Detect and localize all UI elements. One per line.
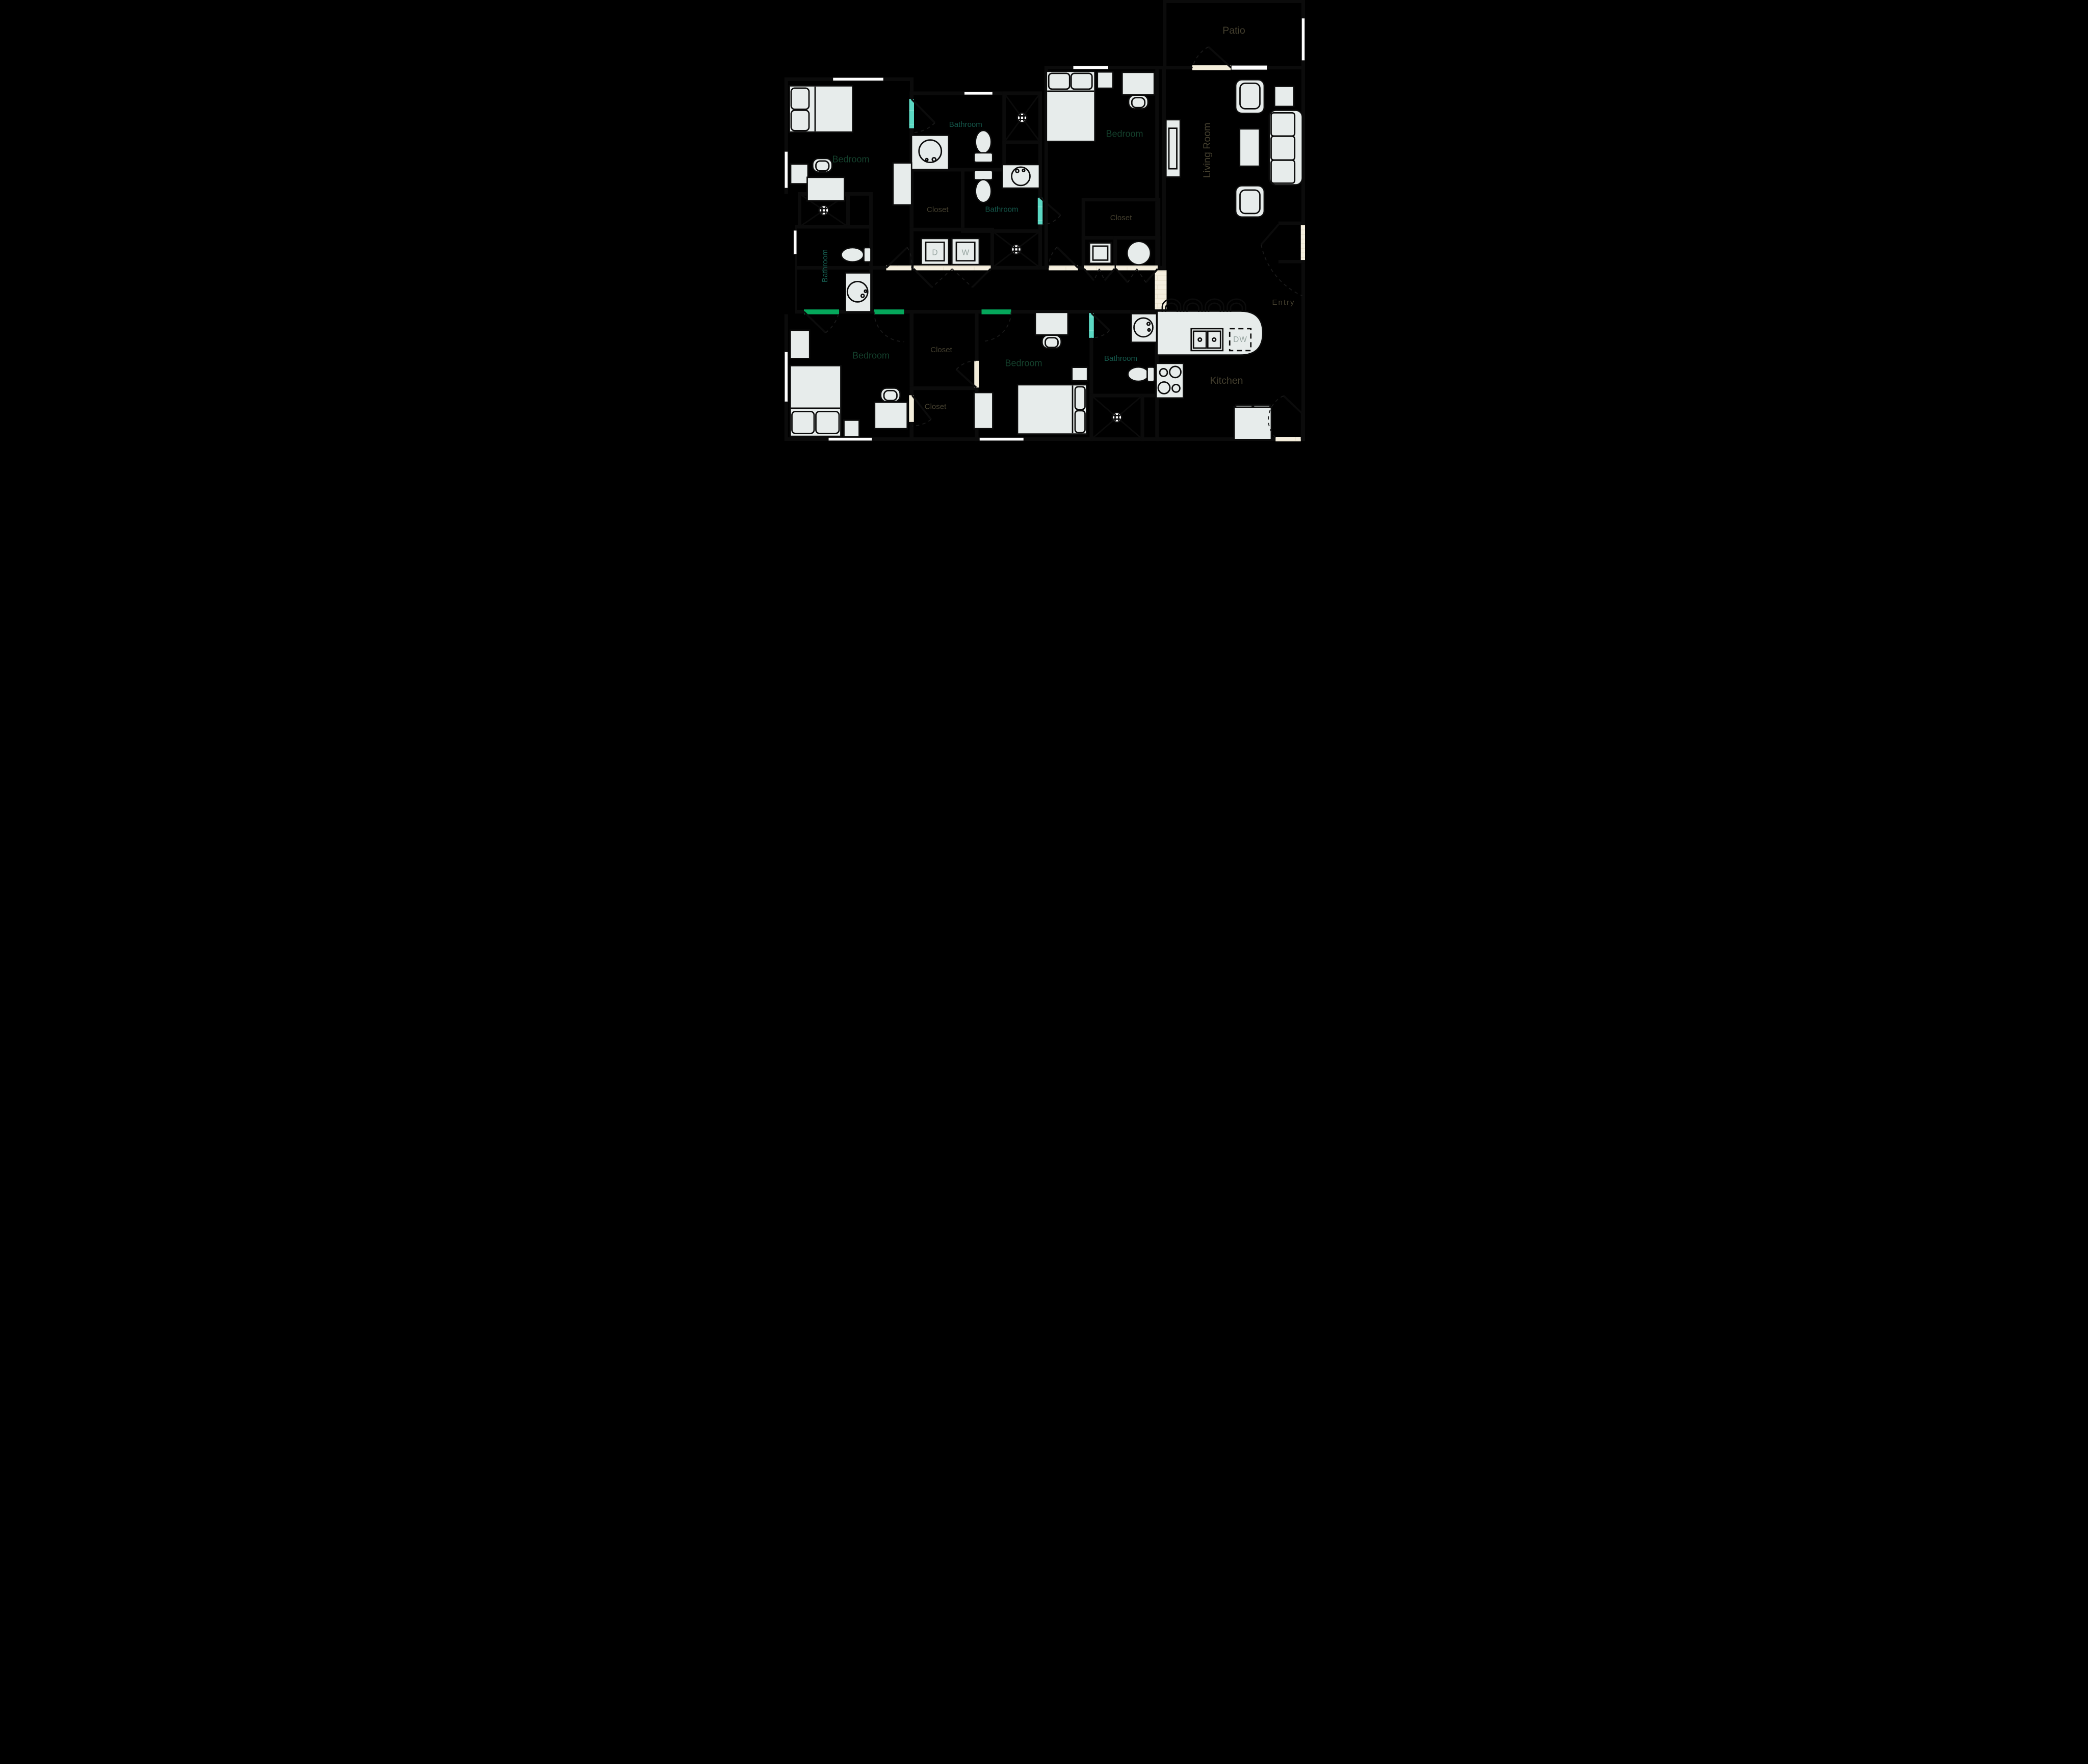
toilet-bathroom-top <box>976 130 991 153</box>
nightstand <box>1072 367 1088 381</box>
pillow <box>1049 73 1069 89</box>
room-label-closet-top-left: Closet <box>927 205 949 214</box>
side-table <box>1274 86 1294 107</box>
pillow <box>1075 387 1085 410</box>
room-label-bedroom-bottom-left: Bedroom <box>852 350 890 360</box>
desk <box>875 402 907 429</box>
room-label-closet-bottom-upper: Closet <box>930 346 952 354</box>
room-label-closet-top-right: Closet <box>1110 214 1132 222</box>
desk <box>807 177 845 201</box>
coffee-table <box>1240 129 1260 166</box>
window-bedroom-top-left-side <box>785 151 788 189</box>
refrigerator <box>1234 407 1271 439</box>
room-label-living-room: Living Room <box>1202 123 1213 178</box>
pillow <box>791 88 809 110</box>
room-label-bedroom-bottom-middle: Bedroom <box>1005 358 1042 368</box>
patio-sliding-door <box>1231 65 1267 70</box>
room-label-bathroom-left: Bathroom <box>821 249 829 282</box>
kitchen-door-stub <box>1301 413 1304 439</box>
desk <box>1035 312 1068 335</box>
dresser <box>893 163 912 205</box>
room-label-patio: Patio <box>1222 25 1245 36</box>
room-label-bathroom-top: Bathroom <box>949 120 982 129</box>
window-bathroom-left <box>793 230 797 255</box>
sink-bathroom-middle <box>1012 167 1030 186</box>
pillow <box>1071 73 1092 89</box>
appliance-label-washer: W <box>962 248 970 257</box>
room-label-bedroom-top-left: Bedroom <box>832 154 869 164</box>
window-bedroom-top-left-top <box>833 77 884 81</box>
appliance-label-dryer: D <box>932 248 937 257</box>
pillow <box>816 411 840 433</box>
floor-plan-svg: Patio Bedroom Bathroom Bedroom Living Ro… <box>783 0 1305 441</box>
toilet-bathroom-bottom <box>1128 367 1149 381</box>
floor-plan-stage: Patio Bedroom Bathroom Bedroom Living Ro… <box>783 0 1305 441</box>
desk <box>1122 72 1154 95</box>
sink-bathroom-bottom <box>1134 318 1153 337</box>
toilet-bathroom-middle <box>974 170 993 180</box>
dresser <box>974 392 993 429</box>
pillow <box>791 110 809 130</box>
room-label-bedroom-top-right: Bedroom <box>1106 128 1143 139</box>
cubby-water-heater <box>1127 242 1151 265</box>
window-bedroom-bottom-left-bottom <box>828 437 872 441</box>
window-bedroom-bottom-left-side <box>785 352 788 402</box>
nightstand <box>844 420 859 437</box>
window-bedroom-bottom-middle <box>979 437 1024 441</box>
sink-bathroom-top <box>919 140 942 163</box>
window-bathroom-top <box>964 91 993 95</box>
room-label-entry: Entry <box>1272 298 1295 307</box>
nightstand <box>791 164 808 184</box>
room-label-bathroom-middle: Bathroom <box>985 205 1018 214</box>
window-patio-right <box>1301 18 1305 61</box>
room-label-closet-bottom-lower: Closet <box>925 402 947 411</box>
window-bedroom-top-right <box>1073 66 1109 69</box>
appliance-label-dishwasher: DW <box>1233 335 1247 344</box>
nightstand <box>1098 72 1113 88</box>
pillow <box>1075 411 1085 433</box>
entry-wall-stub-top <box>1278 222 1305 225</box>
pillow <box>792 411 815 433</box>
toilet-bathroom-left <box>841 248 864 262</box>
dresser <box>790 330 810 359</box>
room-label-bathroom-bottom: Bathroom <box>1104 354 1137 363</box>
room-label-kitchen: Kitchen <box>1210 375 1243 386</box>
entry-wall-stub-bottom <box>1278 260 1305 264</box>
